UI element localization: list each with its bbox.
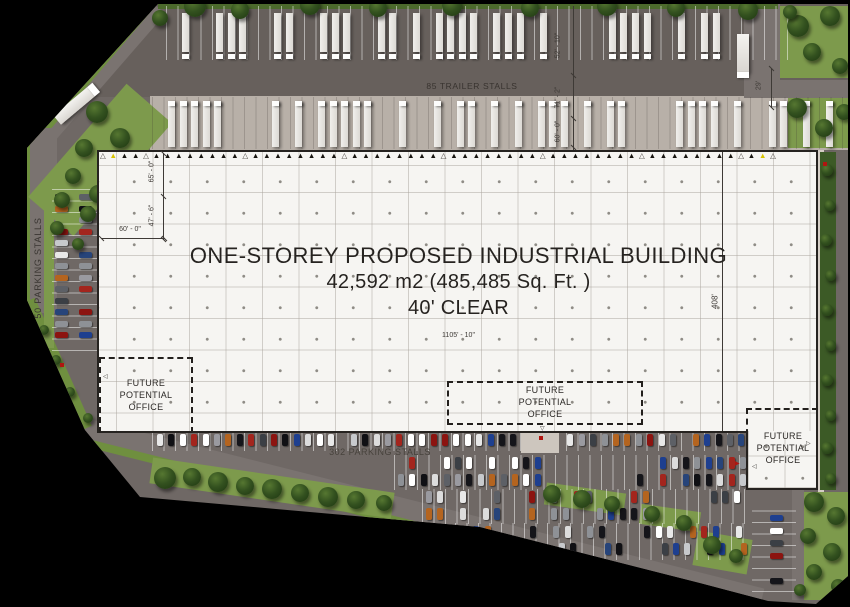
tree [825,473,836,484]
tree [824,200,835,211]
car [485,526,491,538]
parking-stalls-label: 302 PARKING STALLS [300,447,460,457]
dock-door-icon: ▲ [263,151,270,160]
tree [821,442,833,454]
truck-cab [618,101,625,106]
car [684,543,690,555]
trailer-top [447,13,454,52]
tree [823,543,841,561]
tree [573,490,591,508]
car [432,474,438,486]
trailer-top [459,13,466,52]
car [305,434,311,446]
car [637,474,643,486]
car [523,457,529,469]
truck-cab [678,54,685,59]
truck-cab [644,54,651,59]
car [530,526,536,538]
building-width-dimension: 1105' - 10" [97,332,820,339]
trailer-top [332,13,339,52]
truck-cab [561,101,568,106]
trailer-top [493,13,500,52]
car [426,491,432,503]
truck-cab [343,54,350,59]
car [694,457,700,469]
tree [821,304,833,316]
tree [676,515,692,531]
dock-door-icon: ▲ [231,151,238,160]
dimension-line [573,6,574,150]
truck-cab [389,54,396,59]
trailer-top [436,13,443,52]
tree [39,325,49,335]
car [385,434,391,446]
trailer-docked [168,101,175,147]
truck-cab [780,101,787,106]
tree [820,6,840,26]
trailer-docked [711,101,718,147]
car [662,543,668,555]
trailer-docked [515,101,522,147]
dock-door-icon: ▲ [429,151,436,160]
car [613,434,619,446]
dock-door-icon: ▲ [285,151,292,160]
truck-cab [457,101,464,106]
truck-cab [274,54,281,59]
dock-door-icon: ▲ [373,151,380,160]
tree [825,340,836,351]
tree [262,479,282,499]
trailer-top [389,13,396,52]
truck-cab [332,54,339,59]
dock-door-icon: ▲ [274,151,281,160]
dimension-line [101,238,165,239]
trailer-docked [434,101,441,147]
tree [831,579,845,593]
dim-court-71: 71' - 2" [555,80,562,116]
car [398,474,404,486]
car [408,434,414,446]
door-marker-icon: ◁ [103,374,108,380]
dock-door-icon: △ [770,151,776,160]
truck-cab [286,54,293,59]
trailer-docked [191,101,198,147]
car [647,434,653,446]
trailer-top [713,13,720,52]
truck-cab [468,101,475,106]
car [157,434,163,446]
trailer-top [378,13,385,52]
dock-doors-row: △▲▲▲△▲▲▲▲▲▲▲▲△▲▲▲▲▲▲▲▲△▲▲▲▲▲▲▲▲△▲▲▲▲▲▲▲▲… [100,151,776,160]
truck-cab [413,54,420,59]
car [535,457,541,469]
car [271,434,277,446]
trailer-docked [491,101,498,147]
car [421,474,427,486]
truck-cab [318,101,325,106]
car [214,434,220,446]
car [494,508,500,520]
car [706,457,712,469]
trailer-docked [468,101,475,147]
dock-door-icon: ▲ [748,151,755,160]
car [437,508,443,520]
future-office-east-label: FUTURE POTENTIAL OFFICE [750,431,816,466]
dock-door-icon: ▲ [407,151,414,160]
dock-door-icon: ▲ [198,151,205,160]
car [694,474,700,486]
car [465,434,471,446]
car [529,508,535,520]
truck-cab [515,101,522,106]
car [673,543,679,555]
truck-cab [676,101,683,106]
dim-court-60: 60' - 0" [555,114,562,150]
truck-cab [701,54,708,59]
truck-cab [609,54,616,59]
dock-door-icon: ▲ [297,151,304,160]
dock-door-icon: ▲ [110,151,117,160]
car [191,434,197,446]
truck-cab [826,101,833,106]
dock-door-icon: ▲ [561,151,568,160]
truck-cab [737,72,749,78]
car [55,321,68,327]
site-plan-canvas: △▲▲▲△▲▲▲▲▲▲▲▲△▲▲▲▲▲▲▲▲△▲▲▲▲▲▲▲▲△▲▲▲▲▲▲▲▲… [0,0,850,607]
car [693,434,699,446]
trailer-top [216,13,223,52]
truck-cab [295,101,302,106]
car [426,508,432,520]
dock-door-icon: ▲ [351,151,358,160]
building-title: ONE-STOREY PROPOSED INDUSTRIAL BUILDING [97,243,820,269]
trailer-docked [607,101,614,147]
dock-door-icon: ▲ [362,151,369,160]
trailer-top [609,13,616,52]
trailer-top [182,13,189,52]
car [656,526,662,538]
trailer-top [470,13,477,52]
car [690,526,696,538]
truck-cab [436,54,443,59]
dock-door-icon: ▲ [252,151,259,160]
car [644,526,650,538]
trailer-docked [618,101,625,147]
car [489,474,495,486]
car [396,434,402,446]
car [55,286,68,292]
future-office-west-label: FUTURE POTENTIAL OFFICE [114,378,178,413]
tree [729,549,743,563]
car [553,526,559,538]
truck-cab [584,101,591,106]
hydrant-marker-icon [60,363,64,367]
tree [738,0,758,20]
dock-door-icon: ▲ [484,151,491,160]
trailer-docked [676,101,683,147]
tree [154,467,176,489]
car [225,434,231,446]
truck-cab [491,101,498,106]
truck-cab [182,54,189,59]
car [294,434,300,446]
dimension-line [771,68,772,108]
car [203,434,209,446]
car [559,543,565,555]
dock-door-icon: ▲ [682,151,689,160]
car [672,457,678,469]
car [79,332,92,338]
dock-door-icon: ▲ [660,151,667,160]
trailer-docked [584,101,591,147]
tree [83,413,93,423]
dock-door-icon: ▲ [495,151,502,160]
site-area: △▲▲▲△▲▲▲▲▲▲▲▲△▲▲▲▲▲▲▲▲△▲▲▲▲▲▲▲▲△▲▲▲▲▲▲▲▲… [0,0,850,607]
hydrant-marker-icon [823,162,827,166]
truck-cab [632,54,639,59]
dock-door-icon: ▲ [330,151,337,160]
car [489,457,495,469]
car [683,474,689,486]
trailer-top [678,13,685,52]
truck-cab [447,54,454,59]
truck-cab [538,101,545,106]
truck-cab [203,101,210,106]
dock-door-icon: ▲ [583,151,590,160]
car [616,543,622,555]
car [282,434,288,446]
trailer-stall-lines [166,6,792,60]
dim-bay-60: 60' - 0" [106,226,154,233]
trailer-docked [272,101,279,147]
tree [644,506,660,522]
trailer-top [517,13,524,52]
dock-door-icon: △ [100,151,106,160]
car [437,491,443,503]
dock-door-icon: ▲ [594,151,601,160]
trailer-docked [203,101,210,147]
tree [794,584,806,596]
truck-cab [353,101,360,106]
car [180,434,186,446]
car [536,543,542,555]
car [711,491,717,503]
car [79,286,92,292]
car [351,434,357,446]
tree [54,192,70,208]
car [466,474,472,486]
car [770,540,783,546]
trailer-docked [457,101,464,147]
car [551,508,557,520]
car [736,526,742,538]
car [513,543,519,555]
car [706,474,712,486]
dock-door-icon: △ [441,151,447,160]
tree [347,491,365,509]
car [462,526,468,538]
car [525,543,531,555]
car [501,474,507,486]
truck-cab [470,54,477,59]
car [570,543,576,555]
tree [50,221,64,235]
car [409,474,415,486]
car [499,434,505,446]
trailer-top [632,13,639,52]
trailer-top [320,13,327,52]
truck-cab [711,101,718,106]
car [460,491,466,503]
car [620,508,626,520]
tree [208,472,228,492]
dim-east-drive: 29' [756,77,763,95]
tree [803,43,821,61]
tree [75,139,93,157]
future-office-east: FUTURE POTENTIAL OFFICE [746,408,818,488]
tree [152,10,168,26]
car [476,434,482,446]
trailer-top [540,13,547,52]
car [431,434,437,446]
trailer-docked [538,101,545,147]
tree [800,528,816,544]
car [602,434,608,446]
car [55,263,68,269]
car [260,434,266,446]
trailer-docked [341,101,348,147]
car [770,553,783,559]
tree [65,168,81,184]
car [529,491,535,503]
trailer-docked [295,101,302,147]
trailer-docked [364,101,371,147]
truck-cab [272,101,279,106]
tree [291,484,309,502]
grass-fringe [25,140,30,310]
car [683,457,689,469]
car [717,457,723,469]
trailer-docked [699,101,706,147]
truck-cab [378,54,385,59]
dock-door-icon: ▲ [461,151,468,160]
trailer-top [701,13,708,52]
tree [804,492,824,512]
door-marker-icon: ▷ [806,441,811,447]
car [55,252,68,258]
car [168,434,174,446]
tree [318,487,338,507]
car [770,528,783,534]
truck-cab [180,101,187,106]
car [636,434,642,446]
truck-cab [168,101,175,106]
trailer-docked [734,101,741,147]
car [483,508,489,520]
exit-marker-icon: ▶ [735,461,740,467]
dock-door-icon: ▲ [209,151,216,160]
car [488,434,494,446]
car [317,434,323,446]
car [716,434,722,446]
tree [820,234,832,246]
car [722,491,728,503]
dim-bay-65: 65' - 0" [149,154,156,190]
car [79,275,92,281]
trailer-docked [214,101,221,147]
trailer-docked [688,101,695,147]
tree [815,119,833,137]
car [55,309,68,315]
car [643,491,649,503]
truck-cab [688,101,695,106]
dock-door-icon: ▲ [396,151,403,160]
dock-door-icon: ▲ [727,151,734,160]
car [466,457,472,469]
dock-door-icon: ▲ [450,151,457,160]
tree [376,495,392,511]
car [701,526,707,538]
trailer-docked [399,101,406,147]
car [734,491,740,503]
dock-door-icon: ▲ [628,151,635,160]
car [453,434,459,446]
tree [110,128,130,148]
car [510,434,516,446]
truck-cab [341,101,348,106]
tree [825,410,836,421]
car [79,263,92,269]
car [670,434,676,446]
truck-cab [399,101,406,106]
trailer-top [620,13,627,52]
truck-cab [505,54,512,59]
tree [65,387,75,397]
car [55,298,68,304]
car [237,434,243,446]
dock-door-icon: △ [342,151,348,160]
car [444,457,450,469]
future-office-south-label: FUTURE POTENTIAL OFFICE [509,385,581,420]
car [631,508,637,520]
car [660,457,666,469]
dock-door-icon: ▲ [649,151,656,160]
car [590,434,596,446]
tree [604,496,620,512]
tree [543,485,561,503]
dock-door-icon: ▲ [132,151,139,160]
truck-cab [227,515,235,527]
dock-door-icon: △ [242,151,248,160]
dock-door-icon: ▲ [175,151,182,160]
trailer-top [505,13,512,52]
dock-door-icon: ▲ [617,151,624,160]
tree [787,98,807,118]
dock-door-icon: △ [738,151,744,160]
dock-door-icon: ▲ [759,151,766,160]
car [565,526,571,538]
car [442,434,448,446]
truck-cab [713,54,720,59]
tree [832,58,848,74]
car [523,474,529,486]
building-depth-dimension: 408' [711,289,720,315]
dock-door-icon: ▲ [549,151,556,160]
truck-cab [540,54,547,59]
car [455,457,461,469]
car [79,321,92,327]
car [455,474,461,486]
